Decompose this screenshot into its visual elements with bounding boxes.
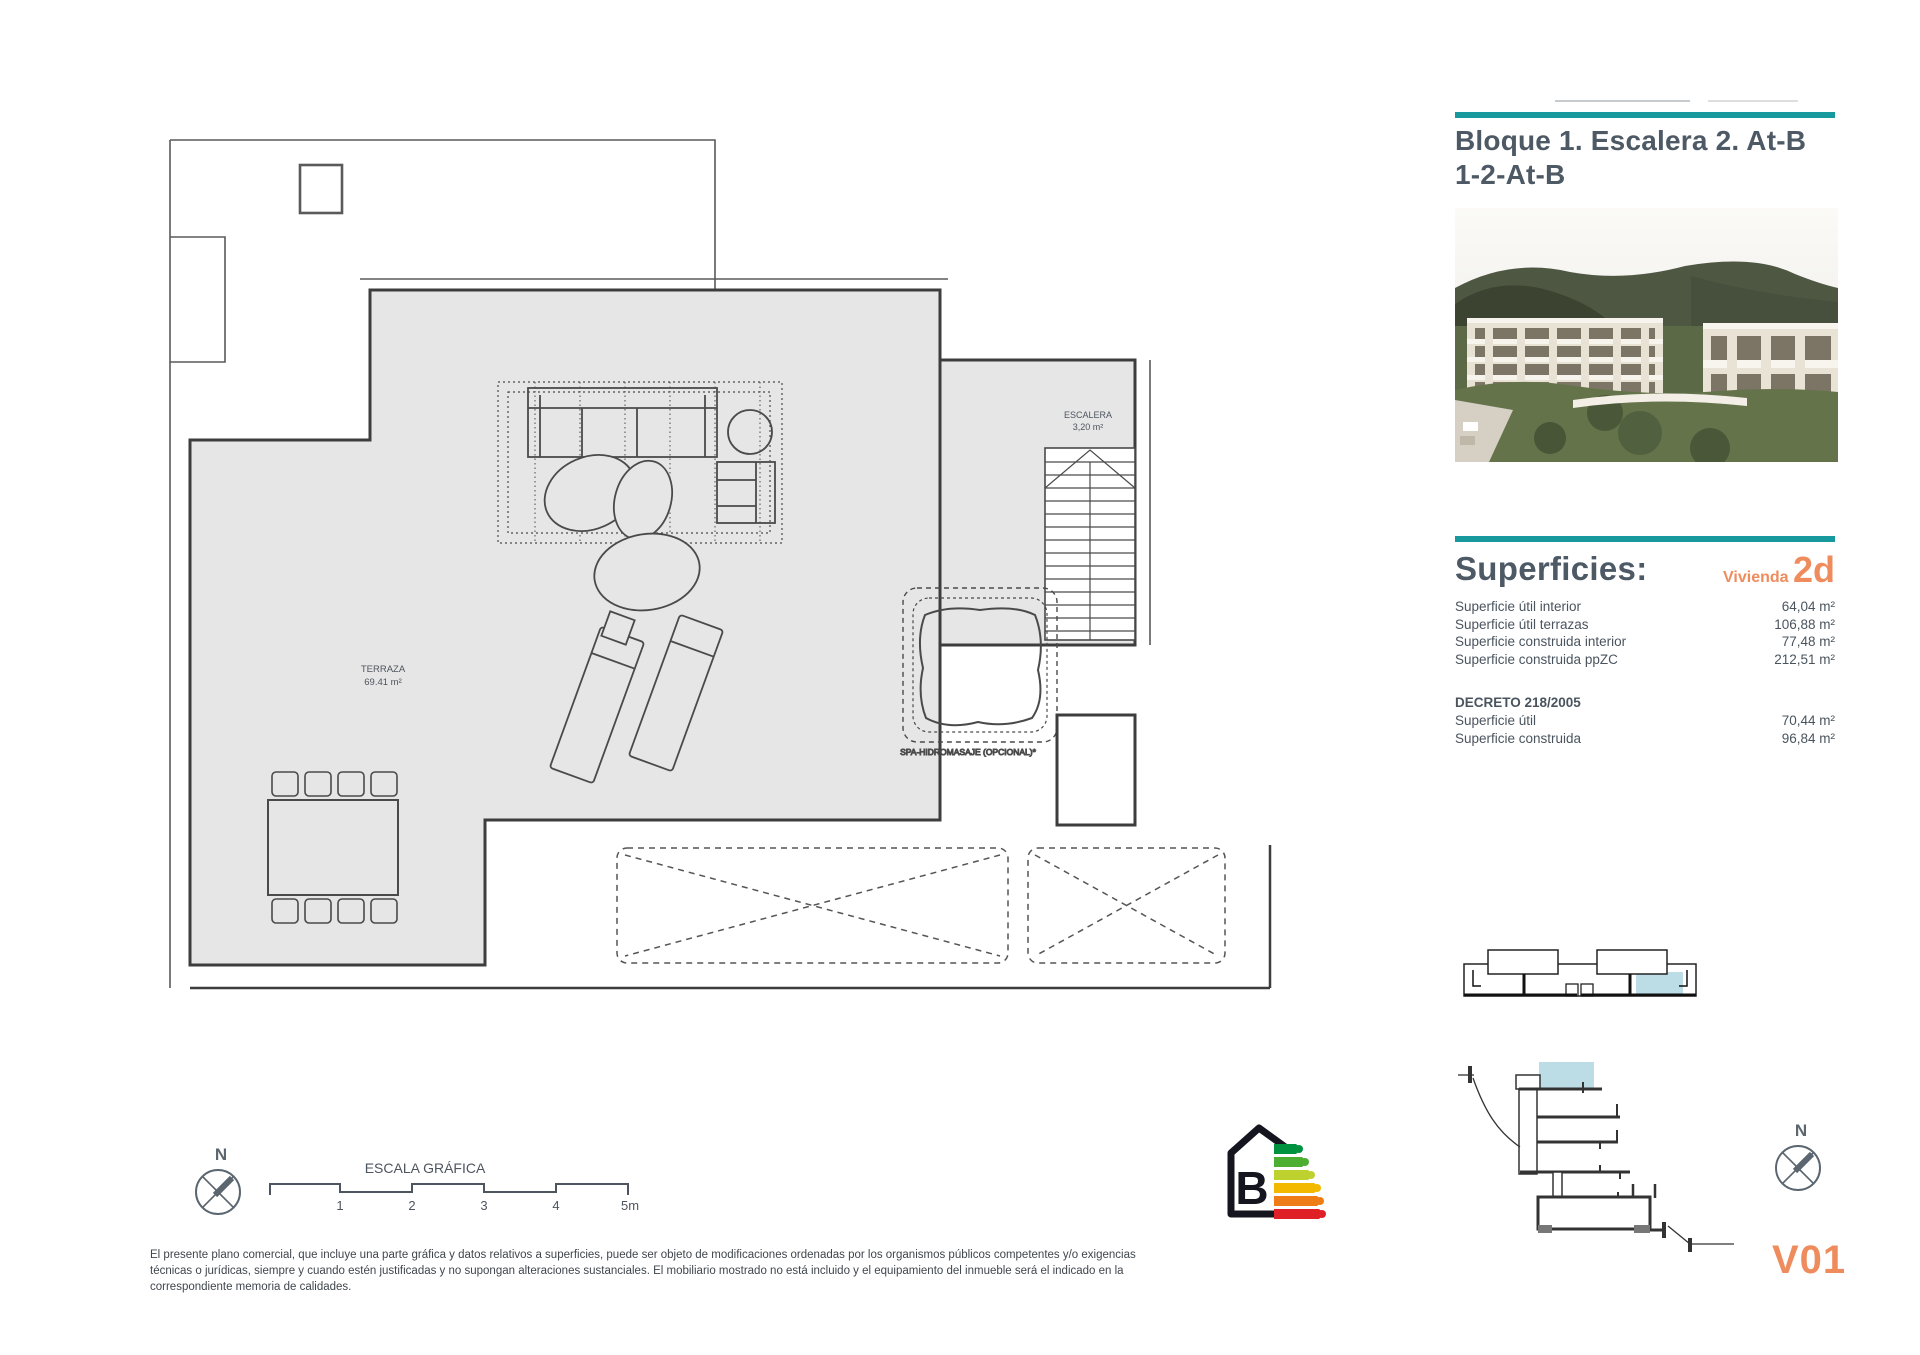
surfaces-table: Superficie útil interior 64,04 m² Superf… (1455, 598, 1835, 668)
redacted-header-note (1555, 100, 1835, 102)
page-title-line1: Bloque 1. Escalera 2. At-B (1455, 124, 1835, 158)
version-code: V01 (1772, 1238, 1846, 1283)
surface-row-value: 64,04 m² (1782, 598, 1835, 616)
scale-tick: 1 (336, 1198, 343, 1213)
energy-rating-badge: B (1222, 1122, 1326, 1226)
surfaces-rule (1455, 536, 1835, 542)
storage-box (1057, 715, 1135, 825)
stairs-area-label: 3,20 m² (1073, 422, 1104, 432)
disclaimer-text: El presente plano comercial, que incluye… (150, 1248, 1160, 1296)
terrace-area-label: 69.41 m² (364, 677, 402, 688)
scale-bar-label: ESCALA GRÁFICA (365, 1160, 486, 1176)
highlighted-level (1539, 1062, 1594, 1088)
surface-row-value: 212,51 m² (1774, 651, 1835, 669)
surface-row: Superficie construida ppZC 212,51 m² (1455, 651, 1835, 669)
surfaces-heading: Superficies: (1455, 550, 1648, 588)
surface-row-label: Superficie útil (1455, 712, 1536, 730)
vivienda-value: 2d (1793, 549, 1835, 590)
spa-label: SPA-HIDROMASAJE (OPCIONAL)* (900, 747, 1037, 757)
stairs: ESCALERA 3,20 m² (940, 360, 1135, 645)
chimney (300, 165, 342, 213)
page-title: Bloque 1. Escalera 2. At-B 1-2-At-B (1455, 124, 1835, 192)
scale-tick: 4 (552, 1198, 559, 1213)
surface-row-value: 96,84 m² (1782, 730, 1835, 748)
info-panel: Bloque 1. Escalera 2. At-B 1-2-At-B (1455, 100, 1835, 192)
unit-locator-diagram (1440, 928, 1725, 1020)
surface-row: Superficie útil terrazas 106,88 m² (1455, 616, 1835, 634)
stairs-label: ESCALERA (1064, 410, 1112, 420)
scale-tick: 5m (621, 1198, 639, 1213)
scale-tick: 3 (480, 1198, 487, 1213)
vivienda-tag: Vivienda 2d (1723, 552, 1835, 588)
highlighted-unit (1636, 972, 1683, 995)
surface-row-label: Superficie construida interior (1455, 633, 1626, 651)
building-rendering (1455, 208, 1838, 462)
energy-rating-letter: B (1235, 1162, 1268, 1214)
plan-sheet: ESCALERA 3,20 m² (0, 0, 1920, 1355)
surface-row-label: Superficie útil interior (1455, 598, 1581, 616)
surface-row-label: Superficie útil terrazas (1455, 616, 1589, 634)
floor-plan: ESCALERA 3,20 m² (120, 110, 1320, 1010)
decreto-section: DECRETO 218/2005 Superficie útil 70,44 m… (1455, 694, 1835, 747)
energy-arrows (1274, 1144, 1326, 1219)
terrace-label: TERRAZA (361, 664, 406, 675)
surface-row: Superficie construida interior 77,48 m² (1455, 633, 1835, 651)
vivienda-label: Vivienda (1723, 569, 1789, 586)
surfaces-section: Superficies: Vivienda 2d Superficie útil… (1455, 536, 1835, 747)
surface-row: Superficie útil interior 64,04 m² (1455, 598, 1835, 616)
building-section-diagram (1440, 1052, 1740, 1282)
awning-box-2 (1028, 848, 1225, 963)
north-compass: N (188, 1142, 248, 1222)
surface-row-label: Superficie construida ppZC (1455, 651, 1618, 669)
decreto-heading: DECRETO 218/2005 (1455, 694, 1835, 712)
surface-row-value: 106,88 m² (1774, 616, 1835, 634)
scale-tick: 2 (408, 1198, 415, 1213)
compass-n-label: N (215, 1145, 227, 1164)
compass-n-label: N (1795, 1121, 1807, 1140)
surface-row-value: 77,48 m² (1782, 633, 1835, 651)
awning-box-1 (617, 848, 1008, 963)
surface-row-label: Superficie construida (1455, 730, 1581, 748)
header-rule (1455, 112, 1835, 118)
surface-row-value: 70,44 m² (1782, 712, 1835, 730)
north-compass: N (1768, 1118, 1828, 1198)
surface-row: Superficie útil 70,44 m² (1455, 712, 1835, 730)
surface-row: Superficie construida 96,84 m² (1455, 730, 1835, 748)
scale-bar: ESCALA GRÁFICA 1 2 3 4 5m (240, 1148, 660, 1218)
page-title-line2: 1-2-At-B (1455, 158, 1835, 192)
